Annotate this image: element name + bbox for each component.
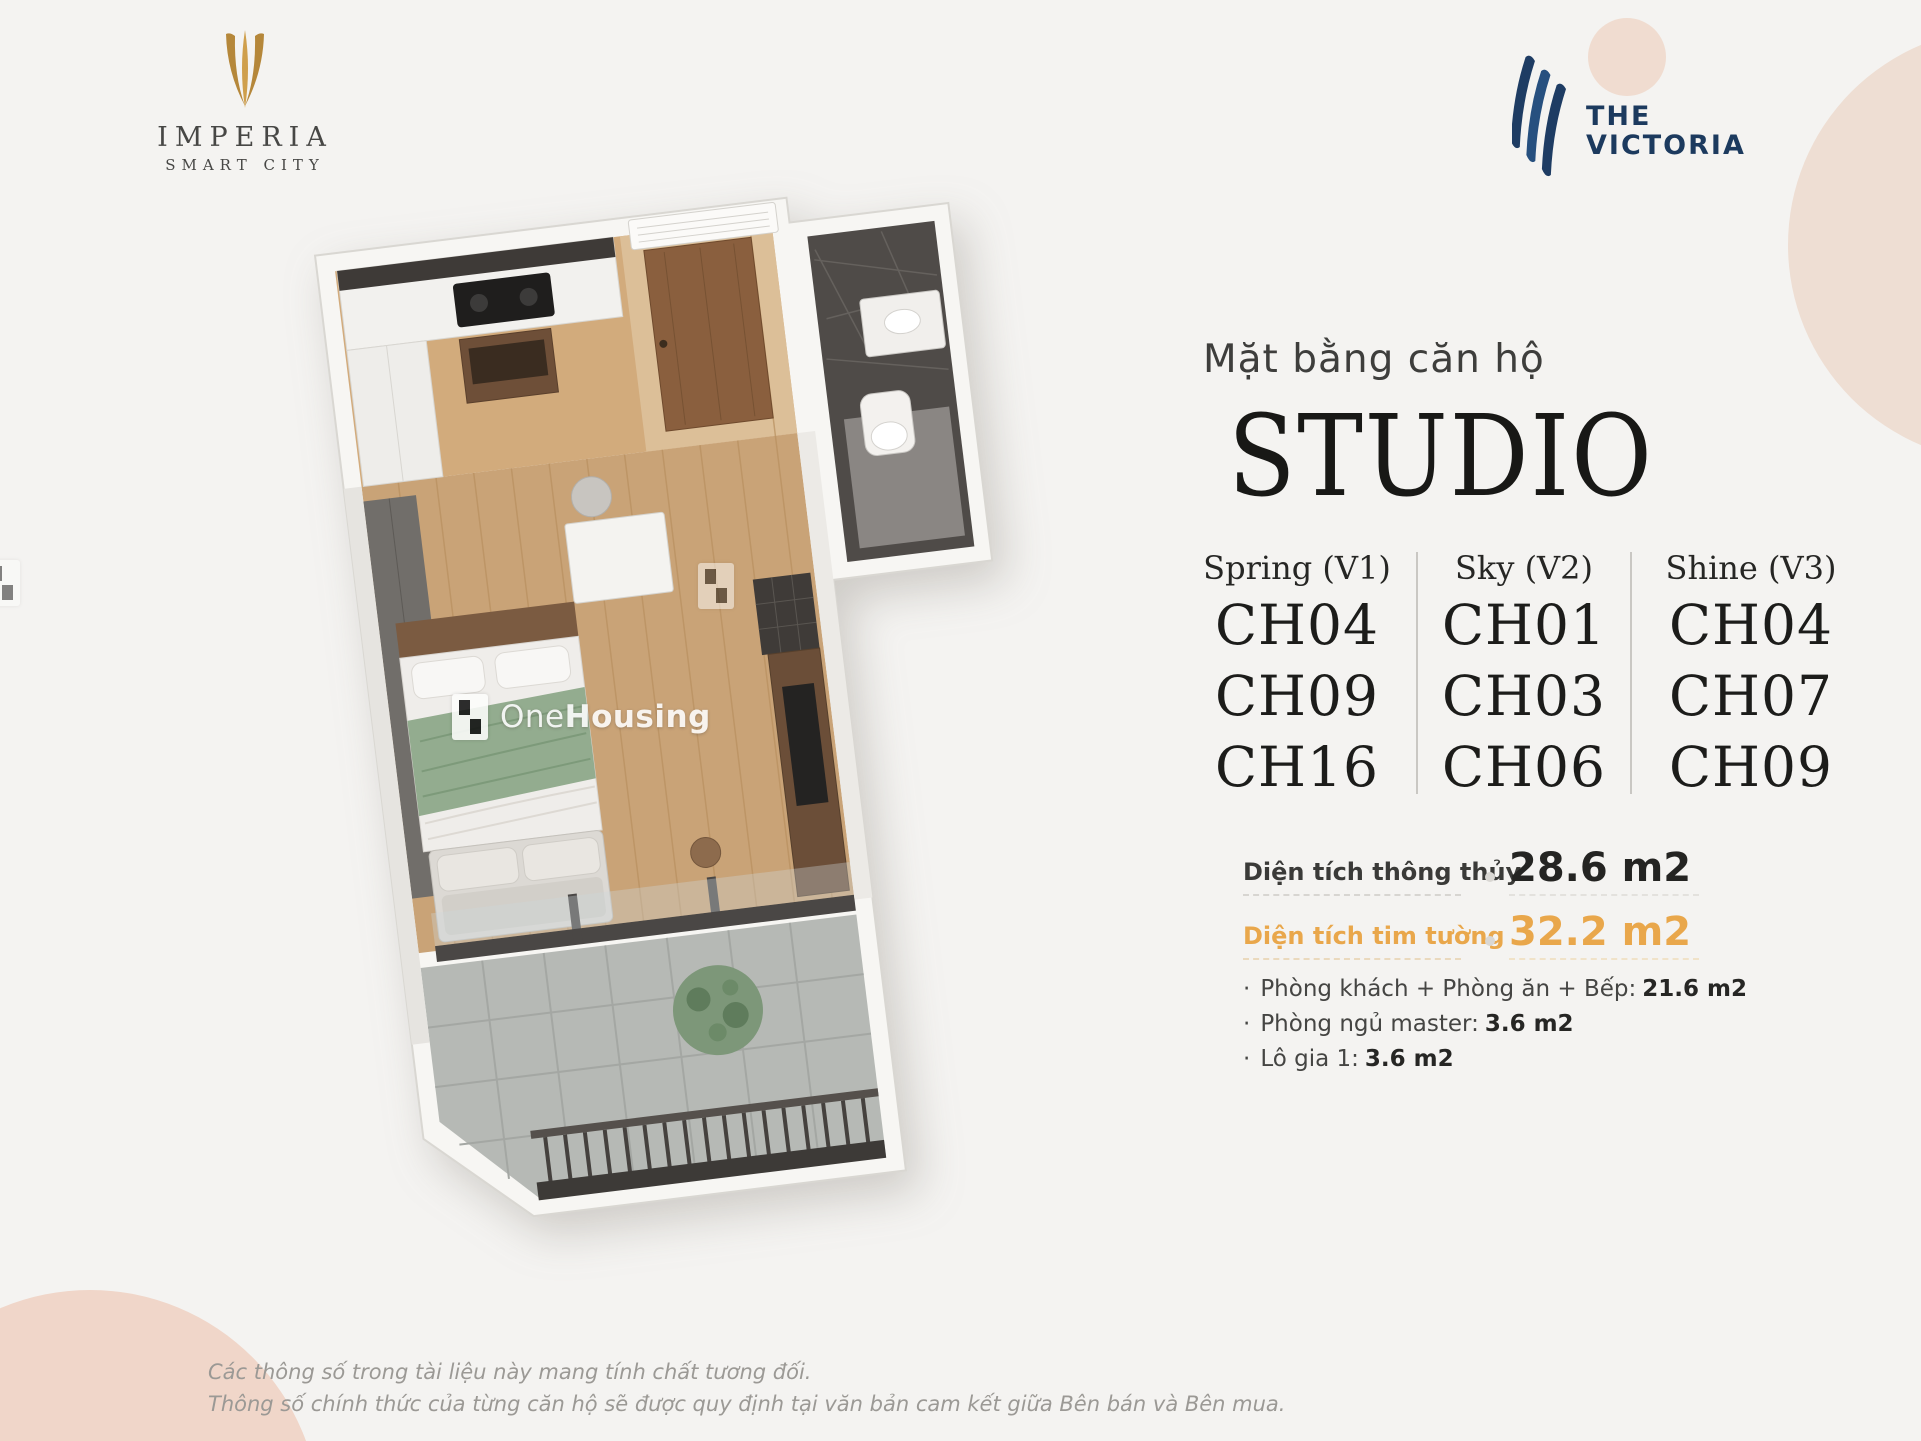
unit-code: CH16 [1178, 732, 1416, 803]
watermark-fragment [0, 560, 20, 606]
entry-door [644, 237, 773, 431]
panel-subtitle: Mặt bằng căn hộ [1203, 337, 1545, 382]
unit-code: CH03 [1418, 661, 1630, 732]
onehousing-logo-icon [452, 694, 488, 740]
victoria-the: THE [1586, 103, 1746, 131]
tower-unit-table: Spring (V1) CH04 CH09 CH16 Sky (V2) CH01… [1178, 546, 1870, 803]
net-area-label: Diện tích thông thủy [1243, 858, 1461, 896]
unit-code: CH09 [1178, 661, 1416, 732]
unit-code: CH07 [1632, 661, 1870, 732]
unit-code: CH06 [1418, 732, 1630, 803]
disclaimer: Các thông số trong tài liệu này mang tín… [208, 1356, 1285, 1420]
gross-area-label: Diện tích tim tường [1243, 922, 1461, 960]
gross-area-row: Diện tích tim tường 32.2 m2 [1243, 910, 1699, 960]
room-area-list: ·Phòng khách + Phòng ăn + Bếp:21.6 m2 ·P… [1243, 972, 1747, 1077]
brochure-page: IMPERIA SMART CITY THE VICTORIA [0, 0, 1921, 1441]
room-value: 21.6 m2 [1642, 976, 1747, 1002]
disclaimer-line2: Thông số chính thức của từng căn hộ sẽ đ… [208, 1388, 1285, 1420]
room-item: ·Phòng khách + Phòng ăn + Bếp:21.6 m2 [1243, 972, 1747, 1007]
disclaimer-line1: Các thông số trong tài liệu này mang tín… [208, 1356, 1285, 1388]
room-item: ·Phòng ngủ master:3.6 m2 [1243, 1007, 1747, 1042]
victoria-stripes-icon [1512, 55, 1582, 180]
room-label: Phòng khách + Phòng ăn + Bếp: [1260, 976, 1636, 1002]
imperia-tulip-icon [214, 28, 276, 112]
tower-column-spring: Spring (V1) CH04 CH09 CH16 [1178, 546, 1416, 803]
dot-separator [1485, 872, 1495, 882]
room-item: ·Lô gia 1:3.6 m2 [1243, 1042, 1747, 1077]
tower-column-sky: Sky (V2) CH01 CH03 CH06 [1418, 546, 1630, 803]
tower-column-shine: Shine (V3) CH04 CH07 CH09 [1632, 546, 1870, 803]
gross-area-value: 32.2 m2 [1509, 910, 1699, 960]
victoria-logo: THE VICTORIA [1512, 55, 1832, 184]
shelf-divider [753, 573, 820, 656]
room-value: 3.6 m2 [1485, 1011, 1574, 1037]
area-summary: Diện tích thông thủy 28.6 m2 Diện tích t… [1243, 846, 1699, 960]
room-label: Phòng ngủ master: [1260, 1011, 1479, 1037]
onehousing-watermark: OneHousing [452, 694, 711, 740]
panel-title: STUDIO [1228, 392, 1654, 522]
victoria-name: VICTORIA [1586, 131, 1746, 161]
unit-code: CH04 [1632, 590, 1870, 661]
tower-name: Shine (V3) [1632, 546, 1870, 590]
net-area-row: Diện tích thông thủy 28.6 m2 [1243, 846, 1699, 896]
unit-code: CH04 [1178, 590, 1416, 661]
tower-name: Sky (V2) [1418, 546, 1630, 590]
room-value: 3.6 m2 [1365, 1046, 1454, 1072]
watermark-fragment [698, 563, 734, 609]
room-label: Lô gia 1: [1260, 1046, 1359, 1072]
onehousing-text: OneHousing [500, 699, 711, 735]
tower-name: Spring (V1) [1178, 546, 1416, 590]
dining-table [565, 512, 674, 604]
unit-code: CH01 [1418, 590, 1630, 661]
dot-separator [1485, 936, 1495, 946]
unit-code: CH09 [1632, 732, 1870, 803]
net-area-value: 28.6 m2 [1509, 846, 1699, 896]
